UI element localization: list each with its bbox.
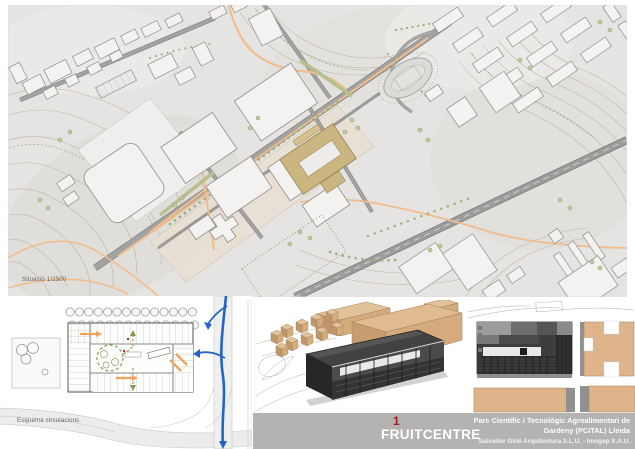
axonometric-view: [253, 299, 465, 413]
west-plot: [12, 338, 60, 388]
fruitcentre-elevation: [477, 322, 572, 378]
architect-credits: Salvador Giné Arquitectura S.L.U. - Imog…: [479, 438, 630, 445]
board-artwork: [0, 0, 635, 449]
park-name: Parc Científic i Tecnològic Agroalimenta…: [474, 416, 630, 435]
park-name-line2: Gardeny (PCiTAL) Lleida: [474, 426, 630, 436]
sheet-number: 1: [393, 414, 400, 428]
site-plan-map: [0, 0, 635, 344]
park-name-line1: Parc Científic i Tecnològic Agroalimenta…: [474, 416, 630, 426]
circulation-diagram: [0, 296, 252, 449]
title-block: 1 FRUITCENTRE Parc Científic i Tecnològi…: [253, 413, 635, 449]
circulation-caption: Esquema circulacions: [17, 418, 79, 424]
site-plan-caption: Situació 1/2500: [22, 277, 66, 283]
project-name: FRUITCENTRE: [381, 427, 481, 442]
elevation-view: [465, 300, 635, 413]
presentation-board: Situació 1/2500 Esquema circulacions 1 F…: [0, 0, 635, 449]
